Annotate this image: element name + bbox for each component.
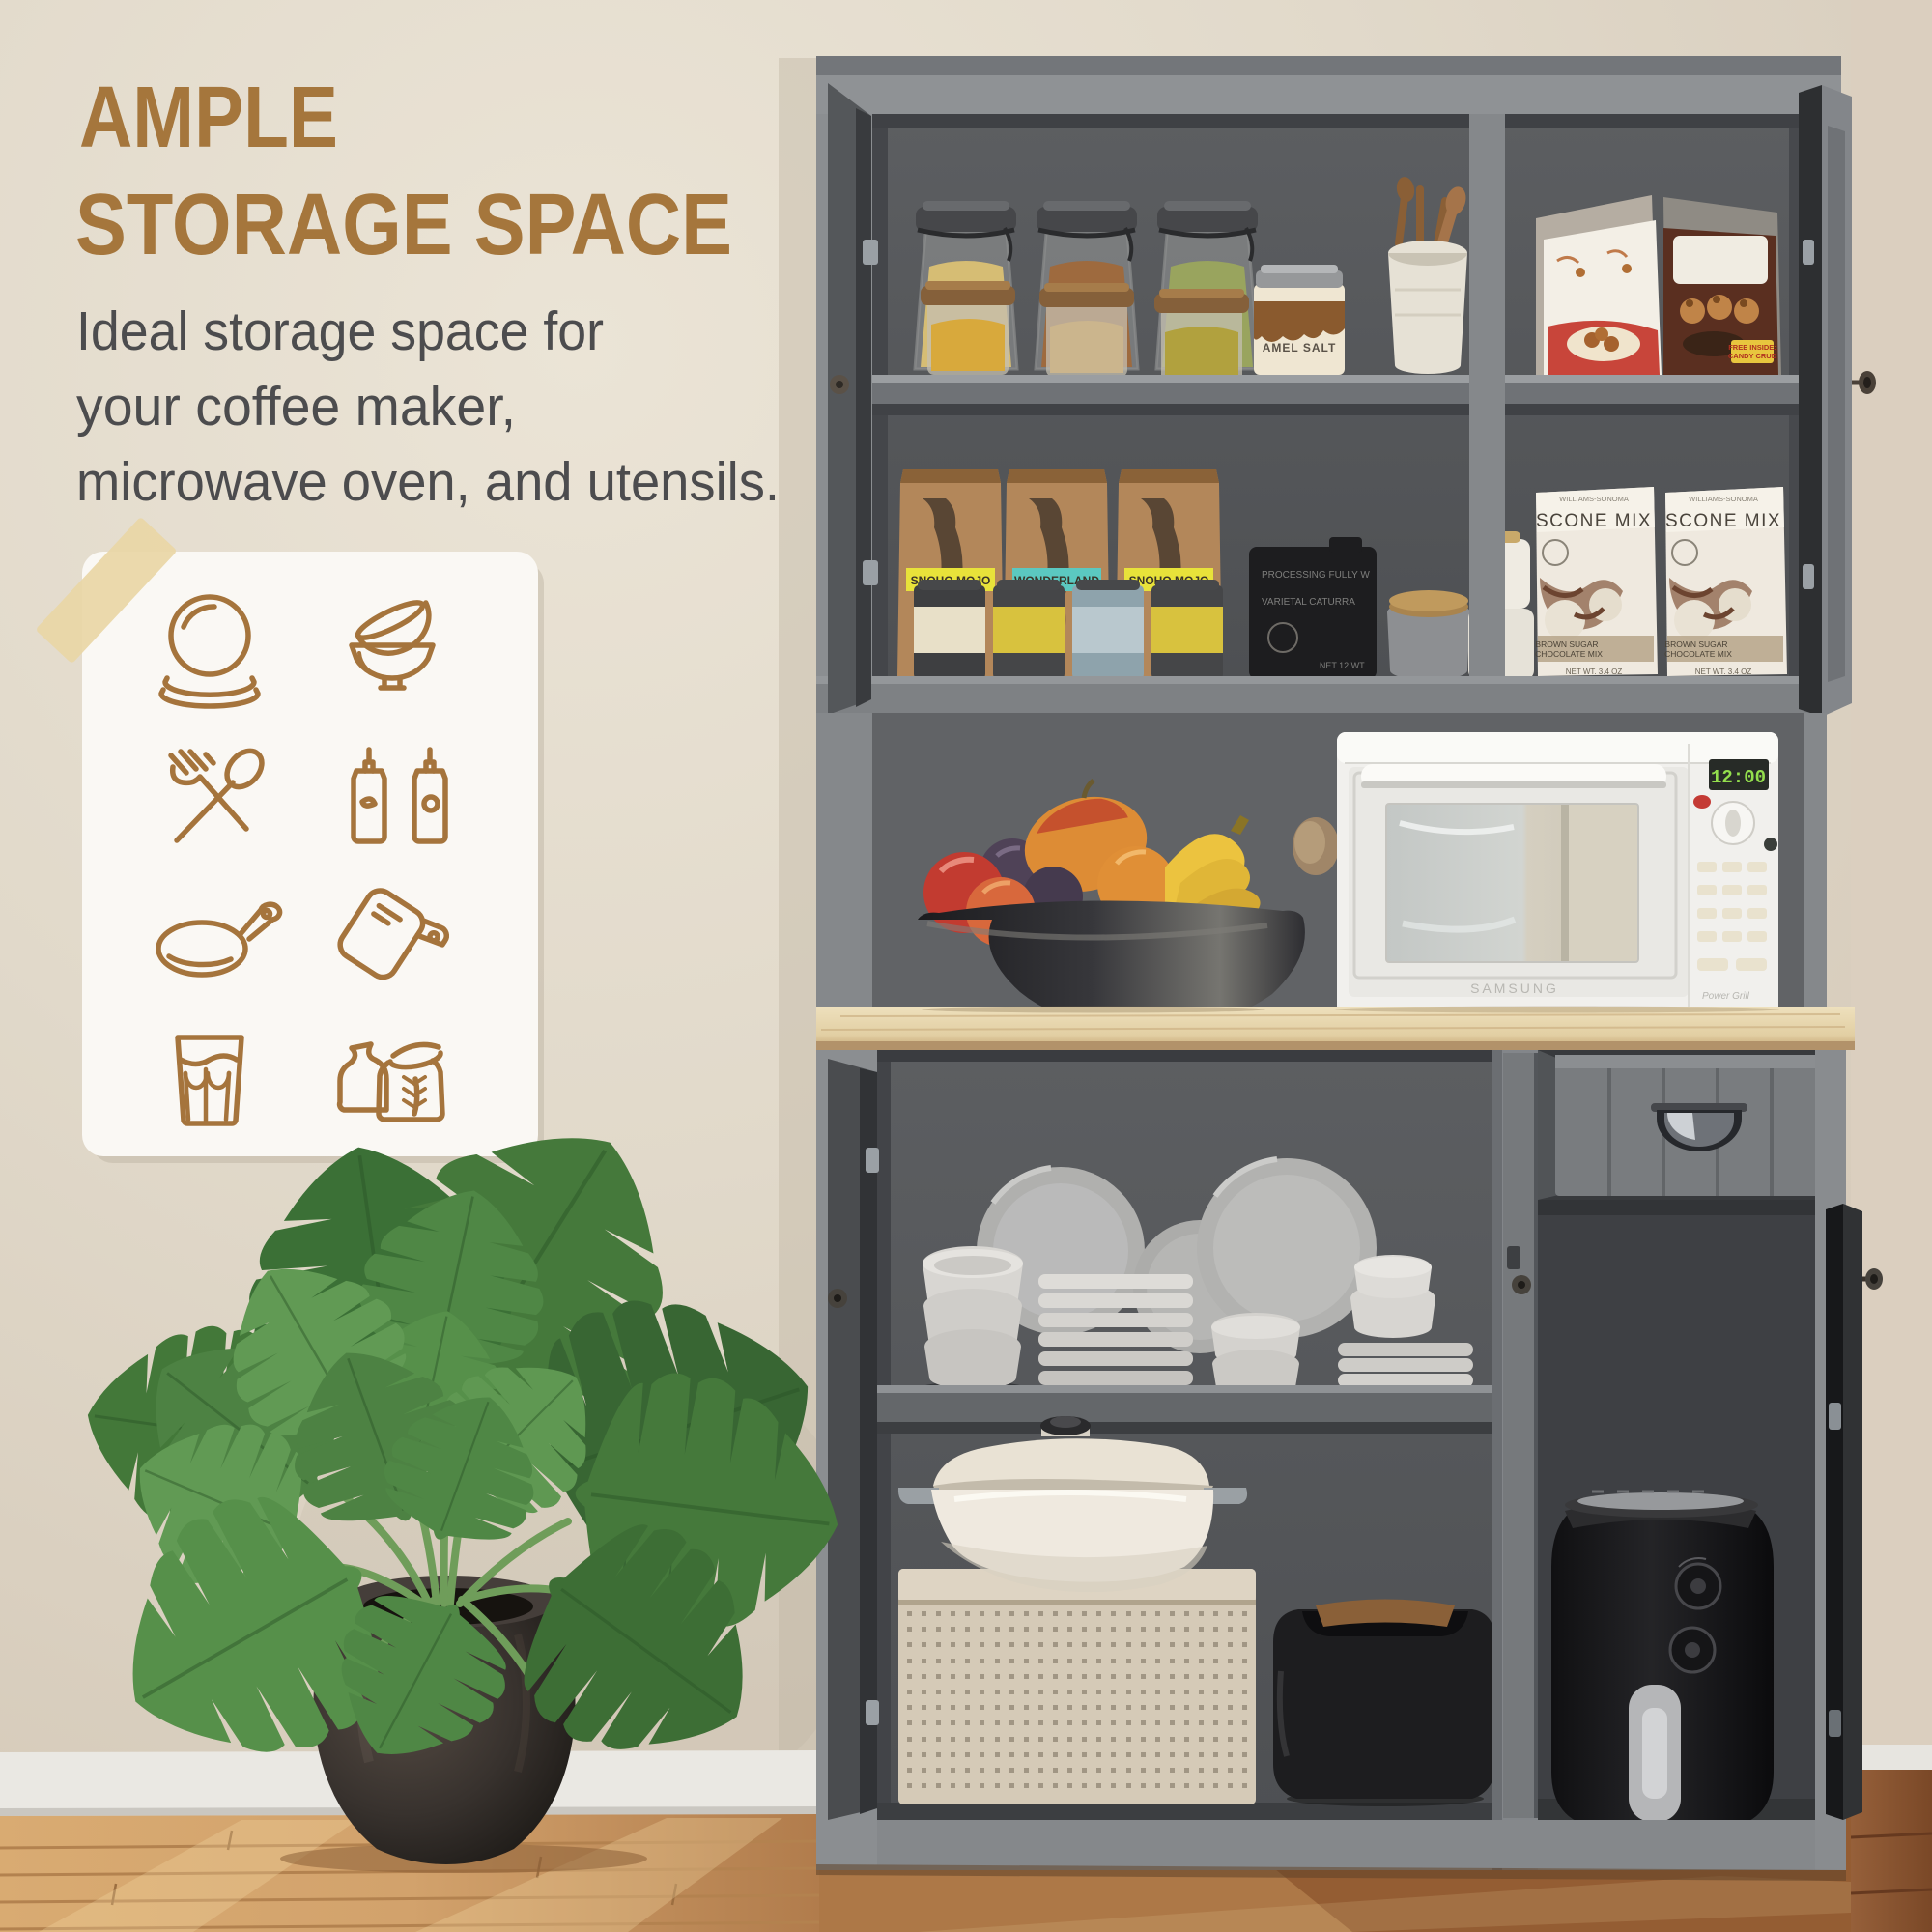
svg-text:NET WT. 3.4 OZ: NET WT. 3.4 OZ: [1566, 668, 1623, 676]
svg-text:AMPLE: AMPLE: [79, 70, 338, 166]
svg-text:CHOCOLATE MIX: CHOCOLATE MIX: [1535, 649, 1603, 659]
svg-text:Ideal storage space for: Ideal storage space for: [76, 300, 604, 362]
svg-text:STORAGE SPACE: STORAGE SPACE: [75, 177, 732, 273]
svg-text:AMEL SALT: AMEL SALT: [1263, 341, 1337, 355]
svg-text:NET 12 WT.: NET 12 WT.: [1320, 661, 1366, 670]
svg-text:CANDY CRUD: CANDY CRUD: [1728, 352, 1777, 360]
svg-text:WILLIAMS-SONOMA: WILLIAMS-SONOMA: [1559, 495, 1629, 503]
svg-text:SCONE MIX: SCONE MIX: [1536, 511, 1652, 531]
svg-text:WILLIAMS-SONOMA: WILLIAMS-SONOMA: [1689, 495, 1758, 503]
svg-text:CHOCOLATE MIX: CHOCOLATE MIX: [1664, 649, 1732, 659]
svg-text:your coffee maker,: your coffee maker,: [76, 376, 516, 438]
svg-text:PROCESSING FULLY W: PROCESSING FULLY W: [1262, 570, 1370, 581]
svg-text:NET WT. 3.4 OZ: NET WT. 3.4 OZ: [1695, 668, 1752, 676]
svg-text:BROWN SUGAR: BROWN SUGAR: [1664, 639, 1727, 649]
svg-text:Power Grill: Power Grill: [1702, 991, 1750, 1002]
svg-text:SAMSUNG: SAMSUNG: [1470, 980, 1559, 996]
svg-text:VARIETAL CATURRA: VARIETAL CATURRA: [1262, 597, 1355, 608]
svg-text:microwave oven, and utensils.: microwave oven, and utensils.: [76, 451, 780, 513]
svg-text:BROWN SUGAR: BROWN SUGAR: [1535, 639, 1598, 649]
svg-text:FREE INSIDE:: FREE INSIDE:: [1728, 343, 1776, 352]
svg-text:SCONE MIX: SCONE MIX: [1665, 511, 1781, 531]
svg-text:12:00: 12:00: [1711, 767, 1766, 788]
